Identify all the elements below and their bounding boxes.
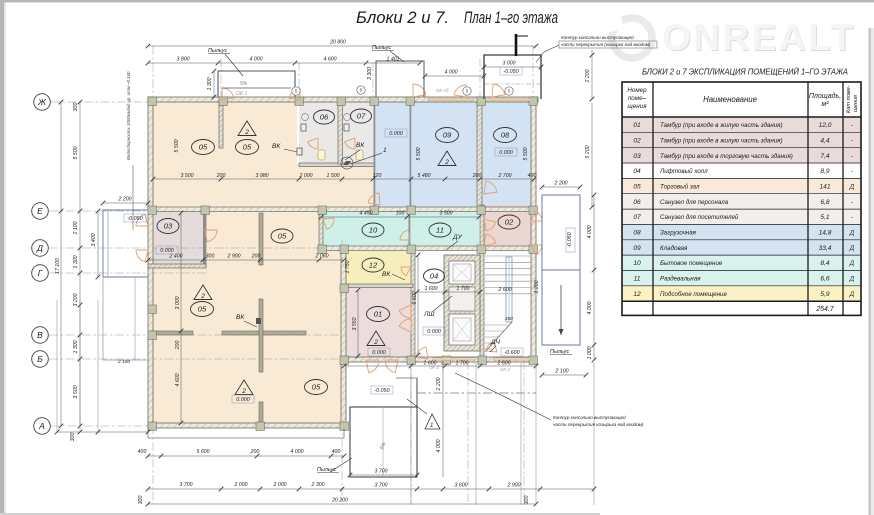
svg-text:щения: щения: [853, 95, 859, 112]
svg-text:14,8: 14,8: [819, 230, 832, 237]
svg-text:2 400: 2 400: [169, 254, 183, 260]
svg-text:Тамбур (при входе в жилую част: Тамбур (при входе в жилую часть здания): [660, 122, 783, 129]
svg-text:4 000: 4 000: [445, 70, 458, 76]
svg-text:-: -: [851, 215, 853, 221]
svg-text:щения: щения: [627, 103, 647, 110]
svg-text:120: 120: [373, 173, 382, 179]
svg-text:А: А: [38, 421, 45, 431]
svg-text:400: 400: [138, 449, 147, 455]
svg-text:5,1: 5,1: [820, 214, 829, 221]
svg-text:200: 200: [472, 173, 482, 179]
svg-text:ВК: ВК: [272, 143, 281, 150]
svg-text:2 200: 2 200: [436, 377, 442, 391]
svg-text:Загрузочная: Загрузочная: [660, 230, 697, 237]
svg-text:Водосборность 1000мм/мд ур. от: Водосборность 1000мм/мд ур. отм –0.160: [126, 71, 131, 160]
svg-text:1 000: 1 000: [587, 346, 593, 359]
svg-text:05: 05: [633, 184, 641, 191]
svg-text:1 300: 1 300: [73, 340, 79, 353]
svg-text:6,6: 6,6: [820, 276, 829, 283]
svg-text:4 600: 4 600: [175, 373, 181, 386]
svg-text:Е: Е: [37, 206, 43, 216]
svg-text:поме–: поме–: [628, 95, 647, 102]
svg-text:5 500: 5 500: [523, 147, 529, 160]
svg-text:05: 05: [243, 143, 252, 152]
svg-text:4 000: 4 000: [250, 57, 263, 63]
svg-text:Торговый зал: Торговый зал: [660, 184, 700, 191]
svg-text:3 700: 3 700: [375, 483, 388, 489]
svg-text:ONREALT: ONREALT: [662, 17, 856, 58]
svg-text:3 600: 3 600: [455, 483, 468, 489]
svg-text:2 060: 2 060: [315, 254, 329, 260]
svg-text:Кат поме-: Кат поме-: [846, 85, 852, 113]
svg-text:1 700: 1 700: [457, 286, 470, 292]
svg-text:Наименование: Наименование: [703, 95, 757, 104]
svg-text:План 1–го этажа: План 1–го этажа: [464, 9, 558, 27]
svg-text:2 900: 2 900: [507, 483, 521, 489]
svg-text:11: 11: [436, 226, 444, 235]
svg-text:ДЧ: ДЧ: [490, 339, 501, 346]
svg-text:3 400: 3 400: [91, 233, 97, 246]
svg-text:ЛШ: ЛШ: [423, 311, 434, 318]
svg-text:8,9: 8,9: [820, 168, 829, 175]
svg-text:1 750: 1 750: [345, 260, 351, 273]
svg-text:254.7: 254.7: [815, 306, 835, 313]
svg-text:5 200: 5 200: [585, 145, 591, 158]
svg-text:1 300: 1 300: [207, 77, 213, 90]
svg-text:Д: Д: [849, 246, 855, 252]
svg-text:4 000: 4 000: [436, 439, 442, 452]
svg-text:2 200: 2 200: [554, 181, 568, 187]
svg-text:300: 300: [524, 496, 530, 505]
svg-text:1 600: 1 600: [425, 286, 438, 292]
svg-text:12: 12: [633, 291, 641, 298]
svg-text:11: 11: [634, 276, 641, 283]
svg-text:2 100: 2 100: [555, 369, 569, 375]
svg-text:Тамбур (при входе в торговую ч: Тамбур (при входе в торговую часть здани…: [660, 153, 793, 160]
svg-text:Контур консольно выступающей: Контур консольно выступающей: [561, 34, 634, 40]
svg-text:1: 1: [383, 147, 387, 154]
svg-text:1: 1: [430, 423, 433, 429]
svg-text:5 500: 5 500: [174, 139, 180, 152]
svg-text:05: 05: [199, 143, 208, 152]
svg-text:м²: м²: [821, 101, 829, 108]
svg-text:3 550: 3 550: [352, 317, 358, 330]
svg-text:02: 02: [633, 137, 641, 144]
svg-text:5 600: 5 600: [412, 291, 418, 304]
svg-text:05: 05: [312, 383, 321, 392]
svg-text:8,4: 8,4: [820, 260, 829, 267]
svg-text:0.000: 0.000: [372, 350, 386, 356]
svg-text:3 200: 3 200: [73, 293, 79, 306]
svg-text:-: -: [851, 200, 853, 206]
svg-text:1 600: 1 600: [424, 361, 437, 367]
svg-text:33,4: 33,4: [819, 245, 832, 252]
svg-text:0.000: 0.000: [236, 397, 250, 403]
svg-text:-: -: [851, 169, 853, 175]
svg-text:Санузел для посетителей: Санузел для посетителей: [660, 214, 739, 221]
svg-text:Кладовая: Кладовая: [660, 245, 688, 252]
svg-text:1 200: 1 200: [534, 280, 540, 293]
svg-text:5 500: 5 500: [416, 147, 422, 160]
svg-text:04: 04: [633, 168, 641, 175]
svg-text:Раздевальная: Раздевальная: [660, 276, 701, 283]
svg-text:2 000: 2 000: [273, 482, 287, 488]
svg-text:-: -: [851, 123, 853, 129]
svg-text:5 600: 5 600: [197, 449, 210, 455]
svg-text:2 300: 2 300: [311, 482, 325, 488]
svg-text:Тамбур (при входе в жилую част: Тамбур (при входе в жилую часть здания): [660, 137, 783, 144]
svg-text:5 500: 5 500: [73, 146, 79, 159]
svg-text:2 900: 2 900: [227, 254, 241, 260]
svg-text:10: 10: [369, 226, 378, 235]
svg-text:3 700: 3 700: [180, 482, 193, 488]
svg-text:3 300: 3 300: [367, 67, 373, 80]
svg-text:4 000: 4 000: [587, 225, 593, 238]
svg-text:17 100: 17 100: [55, 258, 61, 274]
svg-text:12: 12: [369, 261, 378, 270]
svg-text:2 600: 2 600: [498, 287, 512, 293]
svg-text:Д: Д: [849, 292, 855, 298]
svg-text:05: 05: [198, 305, 207, 314]
svg-text:ВК: ВК: [236, 314, 245, 321]
svg-text:300: 300: [73, 103, 79, 112]
svg-text:ОК-1: ОК-1: [236, 91, 248, 97]
svg-text:3 700: 3 700: [375, 469, 388, 475]
svg-text:Номер: Номер: [627, 87, 647, 94]
svg-text:3 000: 3 000: [503, 61, 516, 67]
svg-text:04: 04: [430, 272, 438, 281]
svg-text:2 100: 2 100: [73, 221, 79, 235]
svg-text:части перекрытия (козырка над: части перекрытия (козырка над входом): [561, 42, 651, 47]
svg-text:3 000: 3 000: [175, 296, 181, 309]
svg-text:Пыльус: Пыльус: [208, 48, 227, 54]
svg-text:08: 08: [501, 131, 510, 140]
svg-text:0.000: 0.000: [499, 150, 513, 156]
svg-text:03: 03: [633, 153, 641, 160]
svg-text:1 300: 1 300: [73, 255, 79, 268]
svg-text:12,0: 12,0: [819, 122, 832, 129]
svg-text:ОК-1б: ОК-1б: [436, 88, 449, 93]
svg-text:300: 300: [70, 433, 76, 442]
svg-text:2: 2: [373, 339, 378, 346]
svg-text:В: В: [37, 330, 43, 340]
svg-text:200: 200: [250, 449, 260, 455]
svg-text:1 700: 1 700: [456, 361, 469, 367]
svg-text:2 200: 2 200: [585, 69, 591, 83]
svg-text:400: 400: [528, 173, 537, 179]
svg-text:Д: Д: [849, 231, 855, 237]
svg-text:Пыльус: Пыльус: [372, 45, 391, 51]
svg-text:-: -: [851, 154, 853, 160]
svg-text:Б: Б: [37, 354, 43, 364]
svg-text:4 450: 4 450: [360, 211, 373, 217]
svg-text:01: 01: [633, 122, 641, 129]
svg-text:Бытовое помещение: Бытовое помещение: [660, 260, 723, 267]
svg-text:Д: Д: [849, 261, 855, 267]
svg-text:200: 200: [216, 173, 226, 179]
svg-text:4 600: 4 600: [324, 57, 337, 63]
svg-text:08: 08: [633, 230, 641, 237]
svg-text:Площадь,: Площадь,: [809, 92, 841, 100]
svg-text:-0.050: -0.050: [503, 69, 518, 75]
svg-text:Д: Д: [849, 277, 855, 283]
svg-text:06: 06: [320, 113, 329, 122]
svg-text:20 800: 20 800: [329, 40, 346, 46]
svg-text:300: 300: [206, 254, 215, 260]
svg-text:2 600: 2 600: [497, 361, 511, 367]
svg-text:0.000: 0.000: [389, 131, 403, 137]
svg-text:1 401: 1 401: [387, 57, 400, 63]
svg-text:5 480: 5 480: [418, 173, 431, 179]
svg-text:Подсобное помещение: Подсобное помещение: [660, 291, 727, 298]
svg-text:20 200: 20 200: [331, 498, 348, 504]
svg-text:2: 2: [241, 388, 246, 395]
svg-text:0.000: 0.000: [160, 248, 174, 254]
svg-text:Д: Д: [849, 185, 855, 191]
svg-text:03: 03: [164, 222, 173, 231]
svg-text:Блоки 2 и 7.: Блоки 2 и 7.: [356, 9, 449, 27]
svg-text:07: 07: [357, 112, 366, 121]
svg-text:-: -: [851, 138, 853, 144]
svg-text:2 100: 2 100: [117, 359, 130, 365]
svg-text:6,8: 6,8: [820, 199, 829, 206]
svg-text:2 700: 2 700: [498, 173, 512, 179]
svg-text:7,4: 7,4: [820, 153, 829, 160]
svg-text:01: 01: [374, 310, 382, 319]
svg-text:2 000: 2 000: [234, 482, 248, 488]
svg-text:200: 200: [504, 316, 513, 321]
svg-text:5%: 5%: [240, 81, 248, 87]
svg-text:Д: Д: [36, 243, 43, 253]
svg-text:ОК-2: ОК-2: [500, 367, 510, 372]
svg-text:06: 06: [633, 199, 641, 206]
svg-text:0.000: 0.000: [427, 329, 441, 335]
svg-text:Лифтовый холл: Лифтовый холл: [659, 168, 708, 175]
svg-text:Санузел для персонала: Санузел для персонала: [660, 199, 729, 206]
svg-text:2 200: 2 200: [118, 197, 132, 203]
svg-text:09: 09: [443, 131, 452, 140]
svg-text:ВК: ВК: [356, 142, 365, 149]
svg-text:Ж: Ж: [37, 97, 47, 107]
svg-text:-0.600: -0.600: [504, 350, 519, 356]
svg-text:ДУ: ДУ: [452, 234, 463, 241]
svg-text:200: 200: [175, 341, 181, 351]
svg-text:09: 09: [633, 245, 641, 252]
svg-text:05: 05: [278, 232, 287, 241]
svg-text:10: 10: [633, 260, 641, 267]
svg-text:БЛОКИ 2 и 7 ЭКСПЛИКАЦИЯ ПОМ: БЛОКИ 2 и 7 ЭКСПЛИКАЦИЯ ПОМЕЩЕНИЙ 1–ГО Э…: [642, 66, 848, 77]
svg-text:2 000: 2 000: [299, 173, 313, 179]
svg-text:-0.050: -0.050: [567, 232, 573, 247]
svg-text:3 500: 3 500: [181, 173, 194, 179]
svg-text:200: 200: [251, 254, 261, 260]
svg-text:3 500: 3 500: [440, 211, 453, 217]
svg-text:3 800: 3 800: [177, 57, 190, 63]
svg-text:части перекрытия козырька над: части перекрытия козырька над входом): [553, 422, 644, 427]
svg-text:3 980: 3 980: [256, 173, 269, 179]
svg-text:300: 300: [138, 496, 144, 505]
svg-text:2: 2: [244, 129, 249, 136]
svg-text:07: 07: [633, 214, 641, 221]
svg-text:ВК: ВК: [382, 271, 391, 278]
svg-text:-0.050: -0.050: [127, 216, 142, 222]
svg-text:4 000: 4 000: [587, 301, 593, 314]
svg-text:4,4: 4,4: [820, 137, 829, 144]
svg-text:-0.050: -0.050: [374, 388, 389, 394]
svg-text:Контур консольно выступающей: Контур консольно выступающей: [553, 414, 626, 420]
svg-text:02: 02: [505, 218, 514, 227]
svg-text:400: 400: [332, 449, 341, 455]
svg-text:3 500: 3 500: [73, 385, 79, 398]
svg-text:1 500: 1 500: [327, 173, 340, 179]
svg-text:2: 2: [444, 159, 449, 166]
svg-text:Пыльус: Пыльус: [550, 349, 569, 355]
svg-text:4 000: 4 000: [291, 449, 304, 455]
svg-text:100: 100: [396, 211, 405, 217]
svg-text:2: 2: [200, 293, 205, 300]
svg-text:141: 141: [819, 184, 830, 191]
svg-text:5,9: 5,9: [820, 291, 829, 298]
